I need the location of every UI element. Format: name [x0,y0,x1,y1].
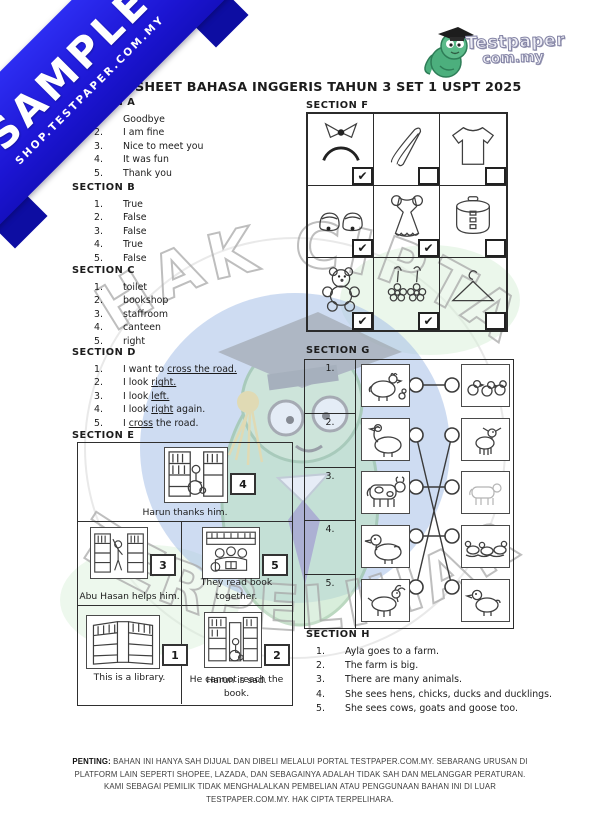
f-cell-headband: ✔ [308,114,374,186]
kid-goat-image [461,418,510,461]
e-caption: Abu Hasan helps him. [78,590,181,604]
section-e-table: 4 Harun thanks him. 3 Abu Hasan helps hi… [77,442,293,706]
section-c-heading: SECTION C [72,265,168,276]
checkbox [485,312,506,330]
f-cell-tshirt [440,114,506,186]
t-shirt-icon [448,120,498,170]
list-item: 3.I look left. [72,390,237,403]
checkbox: ✔ [352,239,373,257]
answer-box: 1 [162,644,188,666]
list-item: 2.I look right. [72,376,237,389]
footer-disclaimer: PENTING: BAHAN INI HANYA SAH DIJUAL DAN … [72,756,528,807]
e-caption-line2: He cannot reach the book. [182,673,291,700]
answer-box: 5 [262,554,288,576]
read-together-image [202,527,260,579]
f-cell-earrings: ✔ [374,258,440,330]
testpaper-logo: Testpaper com.my [420,26,570,82]
cow-image [361,471,410,514]
list-item: 2.The farm is big. [306,659,552,673]
f-cell-shoes: ✔ [308,186,374,258]
headband-icon [316,120,366,170]
e-caption: This is a library. [78,671,181,685]
duck-image [361,525,410,568]
e-caption: Harun thanks him. [78,506,292,520]
section-c: SECTION C 1.toilet 2.bookshop 3.staffroo… [72,265,168,348]
answer-box: 2 [264,644,290,666]
f-cell-tongs [374,114,440,186]
section-f-table: ✔ ✔ [306,112,508,332]
footer-important-label: PENTING: [72,757,110,766]
goose-image [361,418,410,461]
section-d: SECTION D 1.I want to cross the road. 2.… [72,347,237,430]
shoes-icon [316,192,366,242]
list-item: 5.I cross the road. [72,417,237,430]
e-caption: They read book together. [182,576,291,603]
e-row-3: 1 This is a library. 2 Harun is sad. He … [78,605,292,704]
section-h: SECTION H 1.Ayla goes to a farm. 2.The f… [306,629,552,716]
tongs-icon [382,120,432,170]
list-item: 3.staffroom [72,308,168,321]
list-item: 1.toilet [72,281,168,294]
hen-image [361,364,410,407]
dress-icon [382,191,432,241]
ribbon-label: SAMPLE [0,0,157,157]
section-h-heading: SECTION H [306,629,552,640]
list-item: 4.She sees hens, chicks, ducks and duckl… [306,688,552,702]
list-item: 5.She sees cows, goats and goose too. [306,702,552,716]
earrings-icon [382,263,432,313]
section-f-heading: SECTION F [306,100,368,111]
checkbox: ✔ [352,312,373,330]
rice-cooker-icon [448,192,498,242]
gosling-image [461,579,510,622]
calf-image [461,471,510,514]
e-row-2: 3 Abu Hasan helps him. 5 They read book … [78,521,292,605]
section-g-heading: SECTION G [306,345,370,356]
checkbox: ✔ [418,239,439,257]
checkbox [418,167,439,185]
reach-shelf-image [90,527,148,579]
checkbox: ✔ [418,312,439,330]
section-d-heading: SECTION D [72,347,237,358]
chicks-image [461,364,510,407]
teddy-bear-icon [316,263,366,313]
answer-box: 4 [230,473,256,495]
section-e-heading: SECTION E [72,430,134,441]
sad-wheelchair-image [204,612,262,668]
ducklings-image [461,525,510,568]
f-cell-hanger [440,258,506,330]
f-cell-rice-cooker [440,186,506,258]
answer-box: 3 [150,554,176,576]
library-wheelchair-thanks-image [164,447,228,503]
section-g-table: 1. 2. 3. 4. 5. [304,359,514,629]
footer-text: BAHAN INI HANYA SAH DIJUAL DAN DIBELI ME… [75,757,528,804]
list-item: 1.I want to cross the road. [72,363,237,376]
sample-ribbon: SAMPLE SHOP.TESTPAPER.COM.MY [0,0,258,258]
logo-text: Testpaper com.my [465,32,565,68]
goat-image [361,579,410,622]
e-row-1: 4 Harun thanks him. [78,443,292,521]
library-image [86,615,160,669]
checkbox: ✔ [352,167,373,185]
list-item: 4.canteen [72,321,168,334]
list-item: 1.Ayla goes to a farm. [306,645,552,659]
logo-line2: com.my [482,49,566,67]
answer-sheet-page: HAK CIPTA TERPELIHARA SAMPLE SHOP.TESTPA… [0,0,600,836]
list-item: 2.bookshop [72,294,168,307]
f-cell-dress: ✔ [374,186,440,258]
f-cell-teddy-bear: ✔ [308,258,374,330]
hanger-icon [448,266,498,316]
list-item: 4.I look right again. [72,403,237,416]
checkbox [485,167,506,185]
checkbox [485,239,506,257]
list-item: 3.There are many animals. [306,673,552,687]
